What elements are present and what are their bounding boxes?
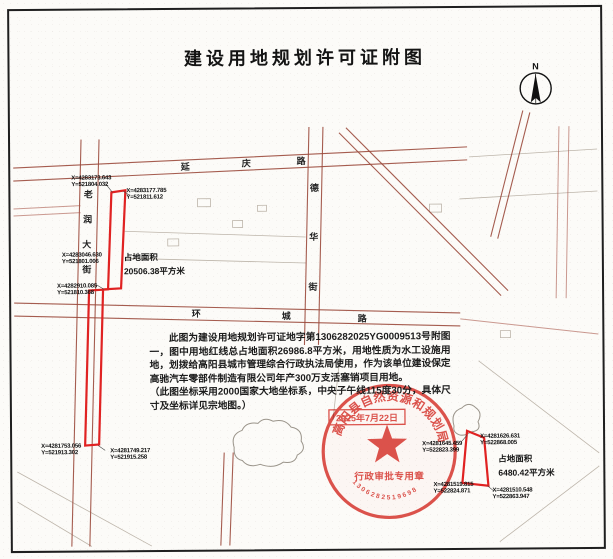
compass-n-label: N <box>532 61 539 71</box>
area-value: 20506.38平方米 <box>124 266 186 276</box>
coord-y: Y=521915.258 <box>110 455 148 461</box>
coord-label: X=4283173.643 Y=521804.032 <box>71 175 112 188</box>
coord-label: X=4281753.056 Y=521913.302 <box>41 444 82 457</box>
svg-text:街: 街 <box>81 264 91 275</box>
coord-x: X=4283177.785 <box>126 188 167 194</box>
road-bottomleft-vertical <box>220 453 234 546</box>
coord-label: X=4281626.631 Y=522868.005 <box>480 434 521 447</box>
notes-paragraph-2: （此图坐标采用2000国家大地坐标系，中央子午线115度30分，具体尺寸及坐标详… <box>150 384 451 413</box>
svg-text:德: 德 <box>310 182 319 193</box>
svg-text:延: 延 <box>180 161 191 172</box>
area-value: 6480.42平方米 <box>498 467 555 477</box>
road-huancheng-east <box>460 318 598 335</box>
coord-x: X=4281753.056 <box>41 444 82 450</box>
street-name-yanqing: 延 庆 路 <box>180 155 307 172</box>
road-steep-topright <box>490 110 531 238</box>
svg-text:润: 润 <box>83 213 92 224</box>
area-label-west: 占地面积 20506.38平方米 <box>124 252 186 276</box>
coord-y: Y=522868.005 <box>480 440 518 446</box>
coord-y: Y=521811.612 <box>126 194 163 200</box>
road-right-vertical <box>555 126 570 298</box>
road-laorun <box>69 139 102 546</box>
seal-date: 2025年7月22日 <box>336 412 398 423</box>
area-title: 占地面积 <box>124 252 159 262</box>
coord-x: X=4283173.643 <box>71 175 112 181</box>
svg-text:街: 街 <box>308 281 318 292</box>
coord-x: X=4281626.631 <box>480 434 521 440</box>
svg-text:老: 老 <box>83 188 93 199</box>
coord-y: Y=522863.947 <box>493 494 531 500</box>
svg-text:城: 城 <box>282 310 291 321</box>
road-huancheng <box>14 300 460 329</box>
coord-x: X=4281510.548 <box>492 487 533 493</box>
coord-y: Y=521804.032 <box>71 182 109 188</box>
svg-text:大: 大 <box>82 239 91 250</box>
svg-text:华: 华 <box>309 231 318 242</box>
notes-paragraph-1: 此图为建设用地规划许可证地字第1306282025YG0009513号附图一，图… <box>149 330 450 386</box>
coord-label: X=4281749.217 Y=521915.258 <box>110 448 151 461</box>
pond-outline-large <box>233 419 304 467</box>
road-west-stub <box>13 206 80 216</box>
coord-x: X=4281749.217 <box>110 448 151 454</box>
area-title: 占地面积 <box>498 453 533 463</box>
scan-content: 建设用地规划许可证附图 N <box>0 0 613 559</box>
coord-x: X=4282910.085 <box>57 283 98 289</box>
seal-center-text: 行政审批专用章 <box>353 470 424 482</box>
map-canvas: N <box>0 0 613 559</box>
svg-text:路: 路 <box>358 313 368 324</box>
coord-y: Y=521810.368 <box>57 290 95 296</box>
coord-x: X=4283046.630 <box>62 252 103 258</box>
coord-label: X=4283177.785 Y=521811.612 <box>126 188 167 201</box>
coord-label: X=4283046.630 Y=521801.006 <box>62 252 103 265</box>
coord-y: Y=521913.302 <box>41 450 79 456</box>
scanned-permit-document: 建设用地规划许可证附图 N <box>0 0 613 559</box>
coord-y: Y=521801.006 <box>62 259 100 265</box>
svg-text:路: 路 <box>297 155 307 166</box>
compass: N <box>520 61 551 104</box>
svg-text:环: 环 <box>192 309 201 319</box>
coord-label: X=4282910.085 Y=521810.368 <box>57 283 98 296</box>
area-label-east: 占地面积 6480.42平方米 <box>498 453 555 477</box>
notes-block: 此图为建设用地规划许可证地字第1306282025YG0009513号附图一，图… <box>149 330 451 413</box>
coord-label: X=4281510.548 Y=522863.947 <box>492 487 533 500</box>
street-name-dehua: 德 华 街 <box>307 182 320 292</box>
svg-text:庆: 庆 <box>241 157 251 168</box>
